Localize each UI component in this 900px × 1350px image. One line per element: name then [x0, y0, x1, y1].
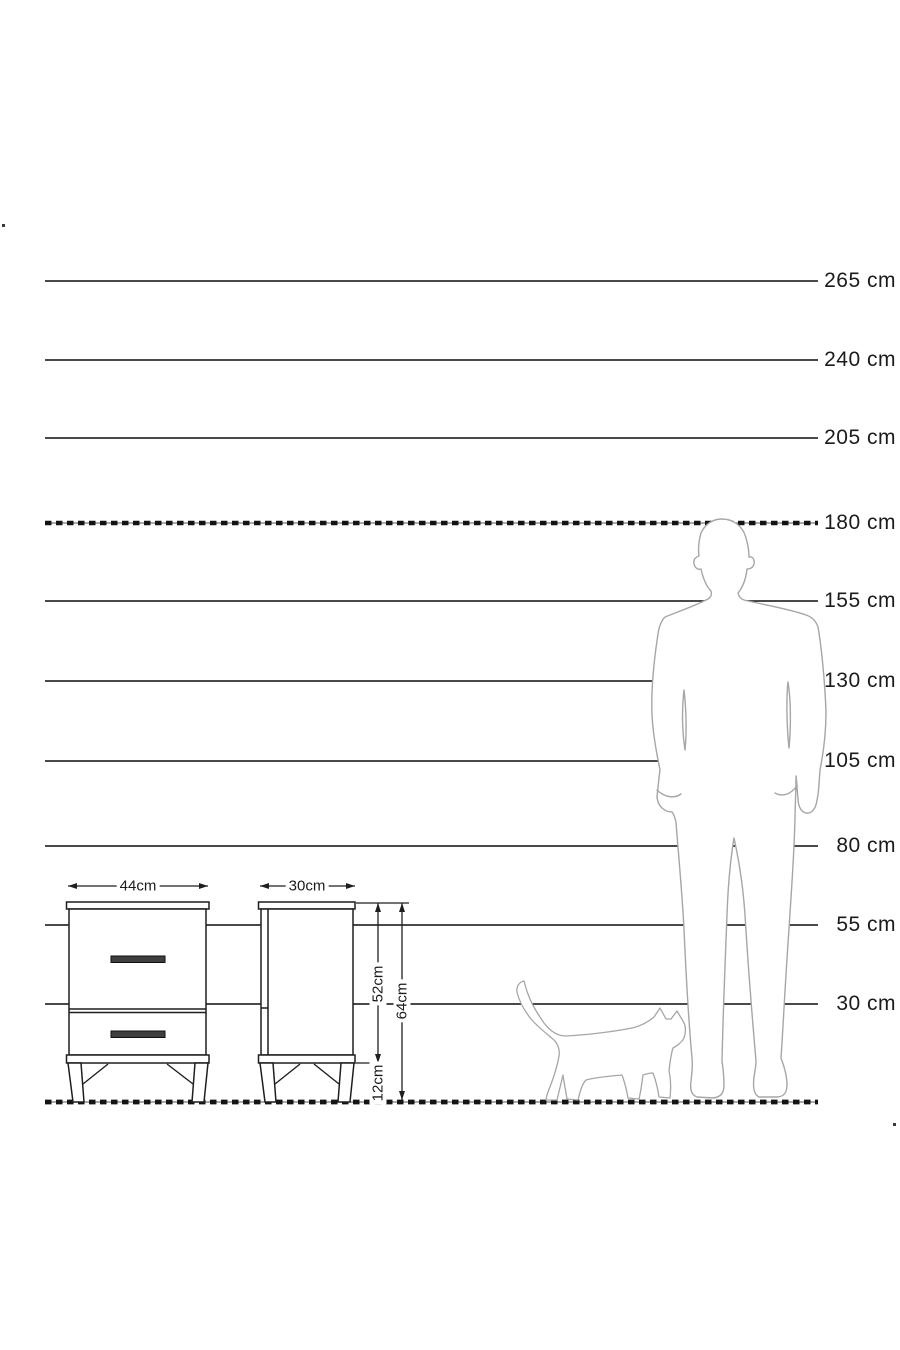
nightstand-front-view: [67, 902, 210, 1102]
scale-label-130: 130 cm: [810, 668, 896, 694]
front-right-leg-brace: [167, 1064, 193, 1084]
front-left-leg-brace: [83, 1064, 108, 1084]
scale-label-55: 55 cm: [810, 912, 896, 938]
side-right-leg-brace: [314, 1064, 339, 1084]
scale-label-240: 240 cm: [810, 347, 896, 373]
scale-label-205: 205 cm: [810, 425, 896, 451]
scale-label-80: 80 cm: [810, 833, 896, 859]
man-silhouette: [652, 519, 826, 1098]
dim-label-depth-30: 30cm: [286, 878, 329, 895]
front-bottom-panel: [67, 1055, 210, 1063]
scale-label-265: 265 cm: [810, 268, 896, 294]
drawer-handle-bottom: [111, 1031, 165, 1038]
scale-label-105: 105 cm: [810, 748, 896, 774]
side-right-leg: [338, 1063, 354, 1102]
front-top-panel: [67, 902, 210, 909]
dim-label-total-64: 64cm: [394, 980, 411, 1023]
size-comparison-diagram: 265 cm 240 cm 205 cm 180 cm 155 cm 130 c…: [0, 0, 900, 1350]
side-top-panel: [259, 902, 356, 909]
side-left-leg-brace: [275, 1064, 300, 1084]
dim-label-width-44: 44cm: [117, 878, 160, 895]
side-bottom-panel: [259, 1055, 356, 1063]
front-right-leg: [192, 1063, 208, 1102]
dim-label-leg-12: 12cm: [370, 1062, 387, 1105]
scale-label-155: 155 cm: [810, 588, 896, 614]
scale-label-180: 180 cm: [810, 510, 896, 536]
scale-label-30: 30 cm: [810, 991, 896, 1017]
nightstand-side-view: [259, 902, 356, 1102]
dim-label-carcass-52: 52cm: [370, 963, 387, 1006]
side-left-leg: [260, 1063, 276, 1102]
front-left-leg: [68, 1063, 84, 1102]
cat-silhouette: [517, 981, 686, 1100]
man-right-arm-gap: [787, 682, 790, 748]
drawer-handle-top: [111, 956, 165, 963]
diagram-artwork: [0, 0, 900, 1350]
side-body: [261, 909, 353, 1055]
